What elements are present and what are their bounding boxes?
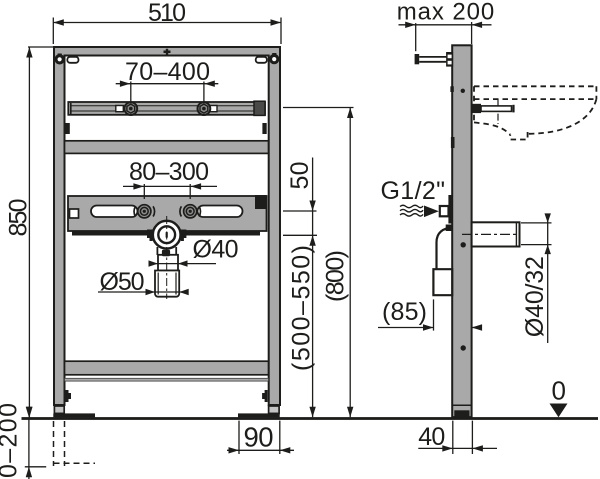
- svg-text:90: 90: [244, 421, 274, 452]
- svg-text:50: 50: [286, 162, 314, 190]
- svg-text:0–200: 0–200: [0, 403, 23, 478]
- svg-text:max 200: max 200: [397, 0, 495, 25]
- svg-text:510: 510: [148, 0, 186, 27]
- svg-text:(500–550): (500–550): [288, 245, 316, 371]
- svg-text:(800): (800): [322, 250, 350, 302]
- svg-text:850: 850: [5, 199, 33, 237]
- svg-text:Ø50: Ø50: [100, 268, 145, 296]
- svg-text:40: 40: [418, 423, 445, 451]
- svg-text:Ø40: Ø40: [193, 235, 239, 263]
- svg-text:80–300: 80–300: [129, 158, 209, 186]
- svg-text:G1/2": G1/2": [381, 177, 446, 205]
- svg-text:(85): (85): [382, 298, 427, 326]
- svg-text:70–400: 70–400: [125, 58, 210, 86]
- svg-text:Ø40/32: Ø40/32: [521, 256, 549, 337]
- svg-text:0: 0: [552, 376, 566, 406]
